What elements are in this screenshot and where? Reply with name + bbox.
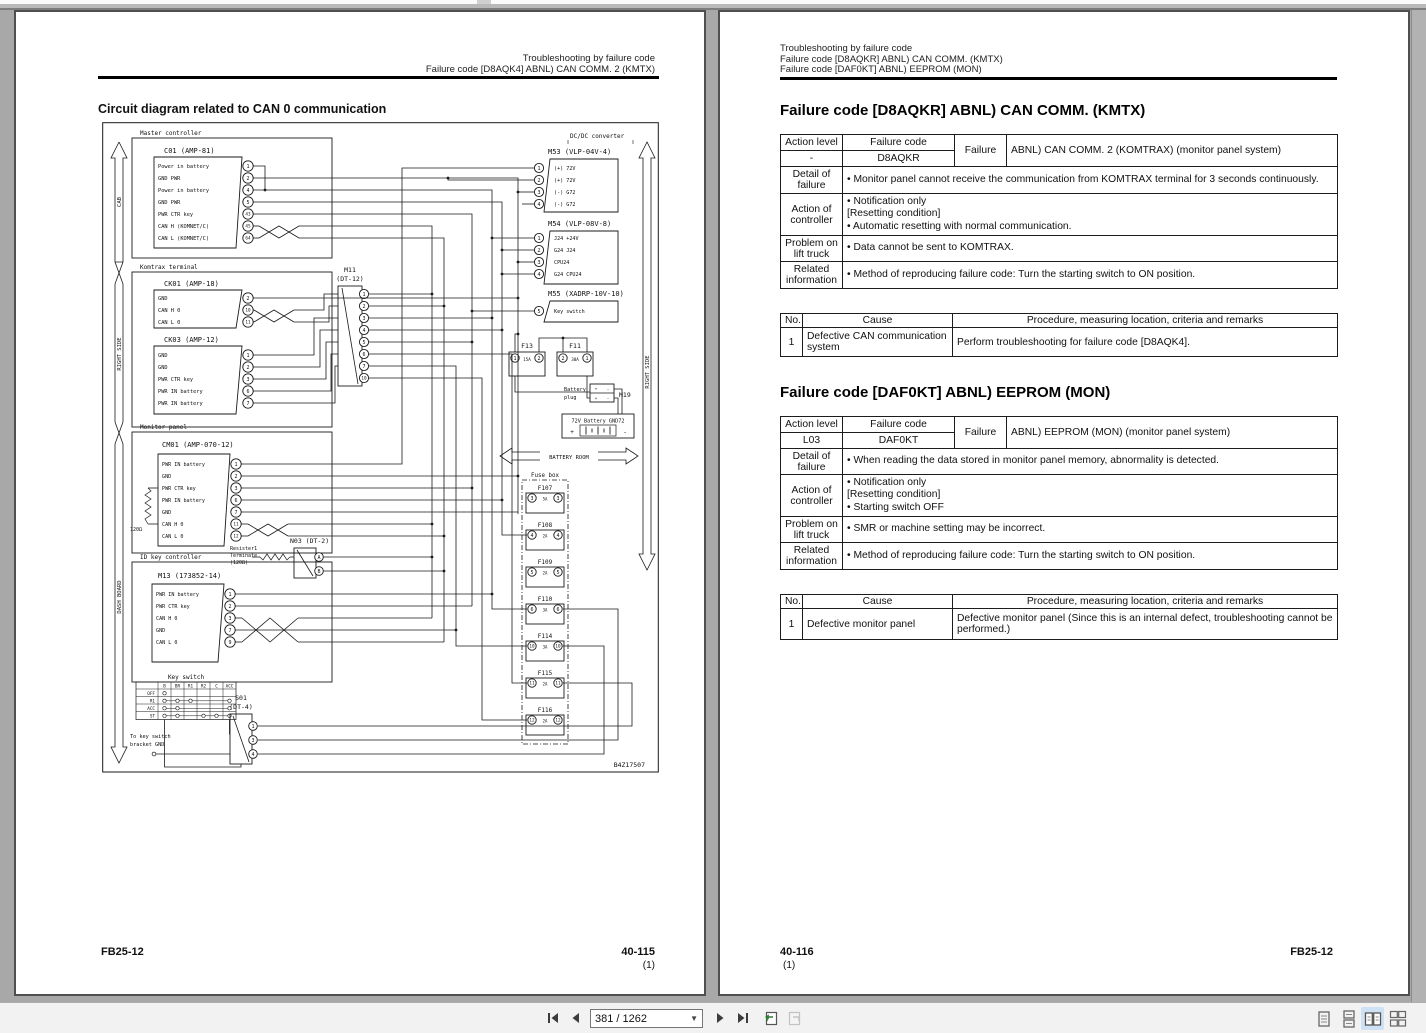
header-line: Failure code [DAF0KT] ABNL) EEPROM (MON): [780, 65, 1003, 76]
procedure-header: Procedure, measuring location, criteria …: [953, 314, 1338, 328]
footer-doc-code: FB25-12: [101, 946, 144, 958]
svg-text:12: 12: [233, 534, 239, 540]
svg-text:7: 7: [234, 510, 237, 516]
svg-text:GND: GND: [158, 353, 168, 359]
svg-text:F116: F116: [538, 707, 553, 714]
svg-text:F110: F110: [538, 596, 553, 603]
circuit-diagram: CABRIGHT SIDEDASH BOARDRIGHT SIDEMaster …: [102, 122, 659, 773]
layout-two-page-button[interactable]: [1361, 1007, 1384, 1030]
svg-text:Power in battery: Power in battery: [158, 188, 209, 194]
header-rule: [780, 77, 1337, 80]
svg-text:1: 1: [246, 353, 249, 359]
svg-text:R1: R1: [150, 698, 156, 704]
svg-text:2: 2: [561, 356, 564, 362]
failure-label: Failure: [955, 417, 1007, 449]
procedure-text: Perform troubleshooting for failure code…: [953, 328, 1338, 357]
svg-text:(DT-12): (DT-12): [336, 275, 363, 283]
failure-code-value: DAF0KT: [843, 433, 955, 449]
svg-text:GND: GND: [162, 510, 171, 516]
svg-text:GND: GND: [156, 628, 165, 634]
svg-text:3: 3: [246, 377, 249, 383]
svg-text:Terminate: Terminate: [230, 553, 257, 559]
row-label: Related information: [781, 262, 843, 289]
svg-text:3: 3: [362, 316, 365, 322]
svg-text:1: 1: [537, 236, 540, 242]
svg-text:A: A: [317, 555, 320, 561]
svg-text:2A: 2A: [543, 571, 548, 576]
svg-text:2A: 2A: [543, 682, 548, 687]
svg-text:12: 12: [529, 718, 535, 724]
svg-text:PWR CTR key: PWR CTR key: [158, 377, 193, 383]
svg-text:2: 2: [246, 365, 249, 371]
action-level-header: Action level: [781, 135, 843, 151]
next-view-button[interactable]: [785, 1008, 805, 1028]
svg-text:4: 4: [530, 533, 533, 539]
svg-text:F107: F107: [538, 485, 553, 492]
circuit-diagram-svg: CABRIGHT SIDEDASH BOARDRIGHT SIDEMaster …: [102, 122, 659, 773]
svg-text:11: 11: [245, 320, 251, 326]
svg-text:C01 (AMP-81): C01 (AMP-81): [164, 147, 215, 155]
failure-desc: ABNL) CAN COMM. 2 (KOMTRAX) (monitor pan…: [1007, 135, 1338, 167]
svg-text:M11: M11: [344, 266, 356, 274]
section-title: Failure code [D8AQKR] ABNL) CAN COMM. (K…: [780, 102, 1145, 119]
svg-text:CAN H 0: CAN H 0: [156, 616, 177, 622]
svg-text:+: +: [595, 388, 598, 393]
svg-text:5: 5: [530, 570, 533, 576]
svg-text:CAN L 0: CAN L 0: [162, 534, 183, 540]
svg-text:2: 2: [246, 296, 249, 302]
page-number-value: 381 / 1262: [595, 1013, 686, 1025]
svg-text:F13: F13: [521, 342, 533, 350]
svg-text:G24 CPU24: G24 CPU24: [554, 272, 582, 278]
svg-text:M19: M19: [619, 391, 631, 399]
svg-text:43: 43: [245, 212, 251, 218]
svg-text:R2: R2: [201, 684, 207, 690]
svg-text:11: 11: [555, 681, 561, 687]
row-content: • Method of reproducing failure code: Tu…: [843, 262, 1338, 289]
pdf-page-right: Troubleshooting by failure code Failure …: [718, 10, 1410, 996]
svg-text:CPU24: CPU24: [554, 260, 569, 266]
svg-text:bracket GND: bracket GND: [130, 742, 164, 748]
footer-doc-code: FB25-12: [1290, 946, 1333, 958]
svg-text:1: 1: [362, 292, 365, 298]
diagram-title: Circuit diagram related to CAN 0 communi…: [98, 102, 386, 116]
svg-text:6: 6: [246, 389, 249, 395]
header-line: Failure code [D8AQK4] ABNL) CAN COMM. 2 …: [426, 65, 655, 76]
vertical-scrollbar[interactable]: [1411, 10, 1426, 1002]
footer-page-sub: (1): [643, 960, 655, 971]
svg-text:30A: 30A: [571, 357, 579, 362]
svg-text:GND: GND: [162, 474, 171, 480]
svg-text:Resister1: Resister1: [230, 546, 257, 552]
svg-text:(-) G72: (-) G72: [554, 190, 575, 196]
svg-text:RIGHT SIDE: RIGHT SIDE: [117, 337, 123, 370]
svg-text:Key switch: Key switch: [554, 309, 585, 315]
svg-text:Monitor panel: Monitor panel: [140, 424, 187, 431]
svg-text:CAB: CAB: [117, 196, 123, 207]
svg-text:+: +: [570, 429, 574, 436]
svg-text:4: 4: [556, 533, 559, 539]
svg-text:2: 2: [362, 304, 365, 310]
svg-text:72V Battery GND72: 72V Battery GND72: [571, 419, 624, 425]
header-line: Troubleshooting by failure code: [426, 54, 655, 65]
svg-text:1: 1: [537, 166, 540, 172]
svg-text:4: 4: [362, 328, 365, 334]
svg-text:2: 2: [537, 178, 540, 184]
svg-text:120Ω: 120Ω: [130, 527, 142, 533]
svg-text:3A: 3A: [543, 608, 548, 613]
row-label: Detail of failure: [781, 167, 843, 194]
action-level-value: L03: [781, 433, 843, 449]
failure-info-table: Action level Failure code Failure ABNL) …: [780, 134, 1338, 289]
procedure-text: Defective monitor panel (Since this is a…: [953, 609, 1338, 640]
svg-text:ST: ST: [150, 713, 156, 719]
svg-text:M13 (173852-14): M13 (173852-14): [158, 572, 221, 580]
svg-text:G24 J24: G24 J24: [554, 248, 575, 254]
svg-text:10: 10: [529, 644, 535, 650]
svg-text:3: 3: [537, 260, 540, 266]
cause-no-header: No.: [781, 595, 803, 609]
svg-text:1: 1: [246, 164, 249, 170]
svg-text:5: 5: [537, 309, 540, 315]
svg-text:2: 2: [228, 604, 231, 610]
cause-no: 1: [781, 328, 803, 357]
chevron-down-icon: ▼: [690, 1014, 698, 1023]
svg-text:PWR CTR key: PWR CTR key: [156, 604, 190, 610]
row-label: Action of controller: [781, 194, 843, 236]
svg-text:5: 5: [556, 570, 559, 576]
svg-text:OFF: OFF: [147, 691, 155, 697]
svg-text:Key switch: Key switch: [168, 674, 205, 681]
svg-text:4: 4: [246, 188, 249, 194]
svg-text:-: -: [607, 388, 610, 393]
svg-text:12: 12: [555, 718, 561, 724]
svg-text:3: 3: [530, 496, 533, 502]
svg-text:GND: GND: [158, 296, 168, 302]
row-content: • Notification only [Resetting condition…: [843, 194, 1338, 236]
svg-text:CK01 (AMP-18): CK01 (AMP-18): [164, 280, 219, 288]
svg-text:5: 5: [246, 200, 249, 206]
svg-text:6: 6: [234, 498, 237, 504]
svg-text:C: C: [215, 684, 218, 690]
pdf-toolbar: 381 / 1262 ▼: [0, 1002, 1426, 1033]
svg-text:6: 6: [362, 352, 365, 358]
svg-text:B4Z17507: B4Z17507: [614, 761, 645, 769]
svg-text:2: 2: [234, 474, 237, 480]
svg-text:3: 3: [251, 738, 254, 744]
svg-text:-: -: [607, 397, 610, 402]
svg-text:M54 (VLP-08V-8): M54 (VLP-08V-8): [548, 220, 611, 228]
row-label: Action of controller: [781, 475, 843, 517]
cause-text: Defective CAN communication system: [803, 328, 953, 357]
svg-text:M55 (XADRP-10V-10): M55 (XADRP-10V-10): [548, 290, 624, 298]
svg-text:R1: R1: [188, 684, 194, 690]
svg-text:Komtrax terminal: Komtrax terminal: [140, 264, 198, 271]
svg-text:ACC: ACC: [226, 684, 234, 690]
svg-text:PWR CTR key: PWR CTR key: [158, 212, 193, 218]
svg-text:ACC: ACC: [147, 706, 155, 712]
svg-text:ID key controller: ID key controller: [140, 554, 202, 561]
svg-text:9: 9: [228, 640, 231, 646]
svg-text:F115: F115: [538, 670, 553, 677]
svg-text:10: 10: [361, 376, 367, 382]
svg-text:11: 11: [529, 681, 535, 687]
svg-text:PWR IN battery: PWR IN battery: [158, 389, 203, 395]
page-number-combobox[interactable]: 381 / 1262 ▼: [590, 1009, 703, 1028]
row-label: Problem on lift truck: [781, 517, 843, 543]
svg-text:PWR IN battery: PWR IN battery: [156, 592, 199, 598]
layout-continuous-button[interactable]: [1337, 1007, 1360, 1030]
row-label: Related information: [781, 543, 843, 570]
first-page-button[interactable]: [543, 1008, 563, 1028]
svg-text:3: 3: [228, 616, 231, 622]
svg-text:4: 4: [537, 202, 540, 208]
svg-text:-: -: [623, 429, 627, 436]
row-content: • Data cannot be sent to KOMTRAX.: [843, 236, 1338, 262]
svg-text:PWR CTR key: PWR CTR key: [162, 486, 196, 492]
svg-text:(DT-4): (DT-4): [229, 703, 252, 711]
svg-text:2A: 2A: [543, 719, 548, 724]
row-content: • Notification only [Resetting condition…: [843, 475, 1338, 517]
svg-text:F114: F114: [538, 633, 553, 640]
previous-view-button[interactable]: [760, 1008, 780, 1028]
page-header-left: Troubleshooting by failure code Failure …: [426, 54, 655, 75]
svg-text:(+) 72V: (+) 72V: [554, 166, 575, 172]
header-line: Troubleshooting by failure code: [780, 44, 1003, 55]
failure-label: Failure: [955, 135, 1007, 167]
previous-page-button[interactable]: [566, 1008, 586, 1028]
svg-text:GND PWR: GND PWR: [158, 200, 181, 206]
svg-text:M53 (VLP-04V-4): M53 (VLP-04V-4): [548, 148, 611, 156]
svg-text:1: 1: [513, 356, 516, 362]
svg-text:2: 2: [246, 176, 249, 182]
last-page-button[interactable]: [733, 1008, 753, 1028]
svg-text:Fuse box: Fuse box: [531, 473, 559, 479]
row-label: Problem on lift truck: [781, 236, 843, 262]
row-content: • Method of reproducing failure code: Tu…: [843, 543, 1338, 570]
footer-page-number: 40-115: [621, 946, 655, 958]
svg-text:6: 6: [530, 607, 533, 613]
svg-text:4: 4: [537, 272, 540, 278]
layout-single-page-button[interactable]: [1312, 1007, 1335, 1030]
layout-two-page-continuous-button[interactable]: [1386, 1007, 1409, 1030]
svg-text:2: 2: [537, 356, 540, 362]
svg-text:S01: S01: [235, 694, 247, 702]
svg-text:CAN H 0: CAN H 0: [162, 522, 183, 528]
svg-text:F11: F11: [569, 342, 581, 350]
svg-text:3: 3: [234, 486, 237, 492]
cause-text: Defective monitor panel: [803, 609, 953, 640]
svg-text:CAN H 0: CAN H 0: [158, 308, 180, 314]
svg-text:2: 2: [537, 248, 540, 254]
svg-text:CK03 (AMP-12): CK03 (AMP-12): [164, 336, 219, 344]
cause-header: Cause: [803, 595, 953, 609]
svg-text:(+) 72V: (+) 72V: [554, 178, 575, 184]
svg-text:CAN L 0: CAN L 0: [158, 320, 180, 326]
svg-text:CM01 (AMP-070-12): CM01 (AMP-070-12): [162, 441, 234, 449]
svg-text:BATTERY ROOM: BATTERY ROOM: [549, 455, 589, 461]
svg-text:CAN H (KOMNET/C): CAN H (KOMNET/C): [158, 224, 209, 230]
svg-text:3A: 3A: [543, 645, 548, 650]
svg-text:+: +: [595, 397, 598, 402]
failure-code-value: D8AQKR: [843, 151, 955, 167]
svg-text:PWR IN battery: PWR IN battery: [162, 498, 205, 504]
svg-text:10: 10: [245, 308, 251, 314]
section-title: Failure code [DAF0KT] ABNL) EEPROM (MON): [780, 384, 1110, 401]
svg-text:1: 1: [228, 592, 231, 598]
svg-text:10: 10: [555, 644, 561, 650]
svg-text:(-) G72: (-) G72: [554, 202, 575, 208]
svg-text:DC/DC converter: DC/DC converter: [570, 133, 625, 140]
svg-text:N03 (DT-2): N03 (DT-2): [290, 537, 329, 545]
svg-text:1: 1: [585, 356, 588, 362]
svg-text:BR: BR: [175, 684, 181, 690]
svg-text:GND PWR: GND PWR: [158, 176, 181, 182]
svg-text:7: 7: [228, 628, 231, 634]
svg-text:CAN L 0: CAN L 0: [156, 640, 177, 646]
header-rule: [98, 76, 659, 79]
failure-info-table: Action level Failure code Failure ABNL) …: [780, 416, 1338, 570]
svg-text:F109: F109: [538, 559, 553, 566]
action-level-header: Action level: [781, 417, 843, 433]
cause-table: No. Cause Procedure, measuring location,…: [780, 313, 1338, 357]
svg-text:GND: GND: [158, 365, 168, 371]
svg-text:J24 +24V: J24 +24V: [554, 236, 579, 242]
svg-text:3: 3: [537, 190, 540, 196]
pdf-page-left: Troubleshooting by failure code Failure …: [14, 10, 706, 996]
procedure-header: Procedure, measuring location, criteria …: [953, 595, 1338, 609]
svg-text:11: 11: [233, 522, 239, 528]
svg-text:To key switch: To key switch: [130, 734, 171, 740]
svg-text:4: 4: [251, 752, 254, 758]
next-page-button[interactable]: [710, 1008, 730, 1028]
svg-text:(120Ω): (120Ω): [230, 560, 248, 566]
failure-desc: ABNL) EEPROM (MON) (monitor panel system…: [1007, 417, 1338, 449]
svg-text:Power in battery: Power in battery: [158, 164, 209, 170]
svg-text:1: 1: [251, 724, 254, 730]
footer-page-number: 40-116: [780, 946, 814, 958]
svg-text:64: 64: [245, 236, 251, 242]
cause-table: No. Cause Procedure, measuring location,…: [780, 594, 1338, 640]
row-content: • Monitor panel cannot receive the commu…: [843, 167, 1338, 194]
svg-text:PWR IN battery: PWR IN battery: [158, 401, 203, 407]
svg-text:7: 7: [362, 364, 365, 370]
svg-text:RIGHT SIDE: RIGHT SIDE: [645, 355, 651, 388]
page-header-right: Troubleshooting by failure code Failure …: [780, 44, 1003, 76]
failure-code-header: Failure code: [843, 417, 955, 433]
svg-text:PWR IN battery: PWR IN battery: [162, 462, 205, 468]
action-level-value: -: [781, 151, 843, 167]
svg-text:2A: 2A: [543, 534, 548, 539]
row-content: • When reading the data stored in monito…: [843, 449, 1338, 475]
svg-text:1: 1: [234, 462, 237, 468]
svg-text:6: 6: [556, 607, 559, 613]
svg-text:5: 5: [362, 340, 365, 346]
svg-text:3: 3: [556, 496, 559, 502]
svg-text:5A: 5A: [543, 497, 548, 502]
svg-text:Master controller: Master controller: [140, 130, 202, 137]
svg-text:B: B: [317, 569, 320, 575]
svg-text:7: 7: [246, 401, 249, 407]
svg-text:B: B: [163, 684, 166, 690]
top-toolbar-remnant: [0, 0, 1426, 10]
footer-page-sub: (1): [783, 960, 795, 971]
svg-text:F108: F108: [538, 522, 553, 529]
cause-no: 1: [781, 609, 803, 640]
cause-header: Cause: [803, 314, 953, 328]
svg-text:45: 45: [245, 224, 251, 230]
top-toolbar-notch: [477, 0, 491, 4]
row-content: • SMR or machine setting may be incorrec…: [843, 517, 1338, 543]
row-label: Detail of failure: [781, 449, 843, 475]
svg-text:CAN L (KOMNET/C): CAN L (KOMNET/C): [158, 236, 209, 242]
svg-text:DASH BOARD: DASH BOARD: [117, 580, 123, 613]
svg-text:plug: plug: [564, 395, 577, 401]
svg-text:15A: 15A: [523, 357, 531, 362]
cause-no-header: No.: [781, 314, 803, 328]
failure-code-header: Failure code: [843, 135, 955, 151]
